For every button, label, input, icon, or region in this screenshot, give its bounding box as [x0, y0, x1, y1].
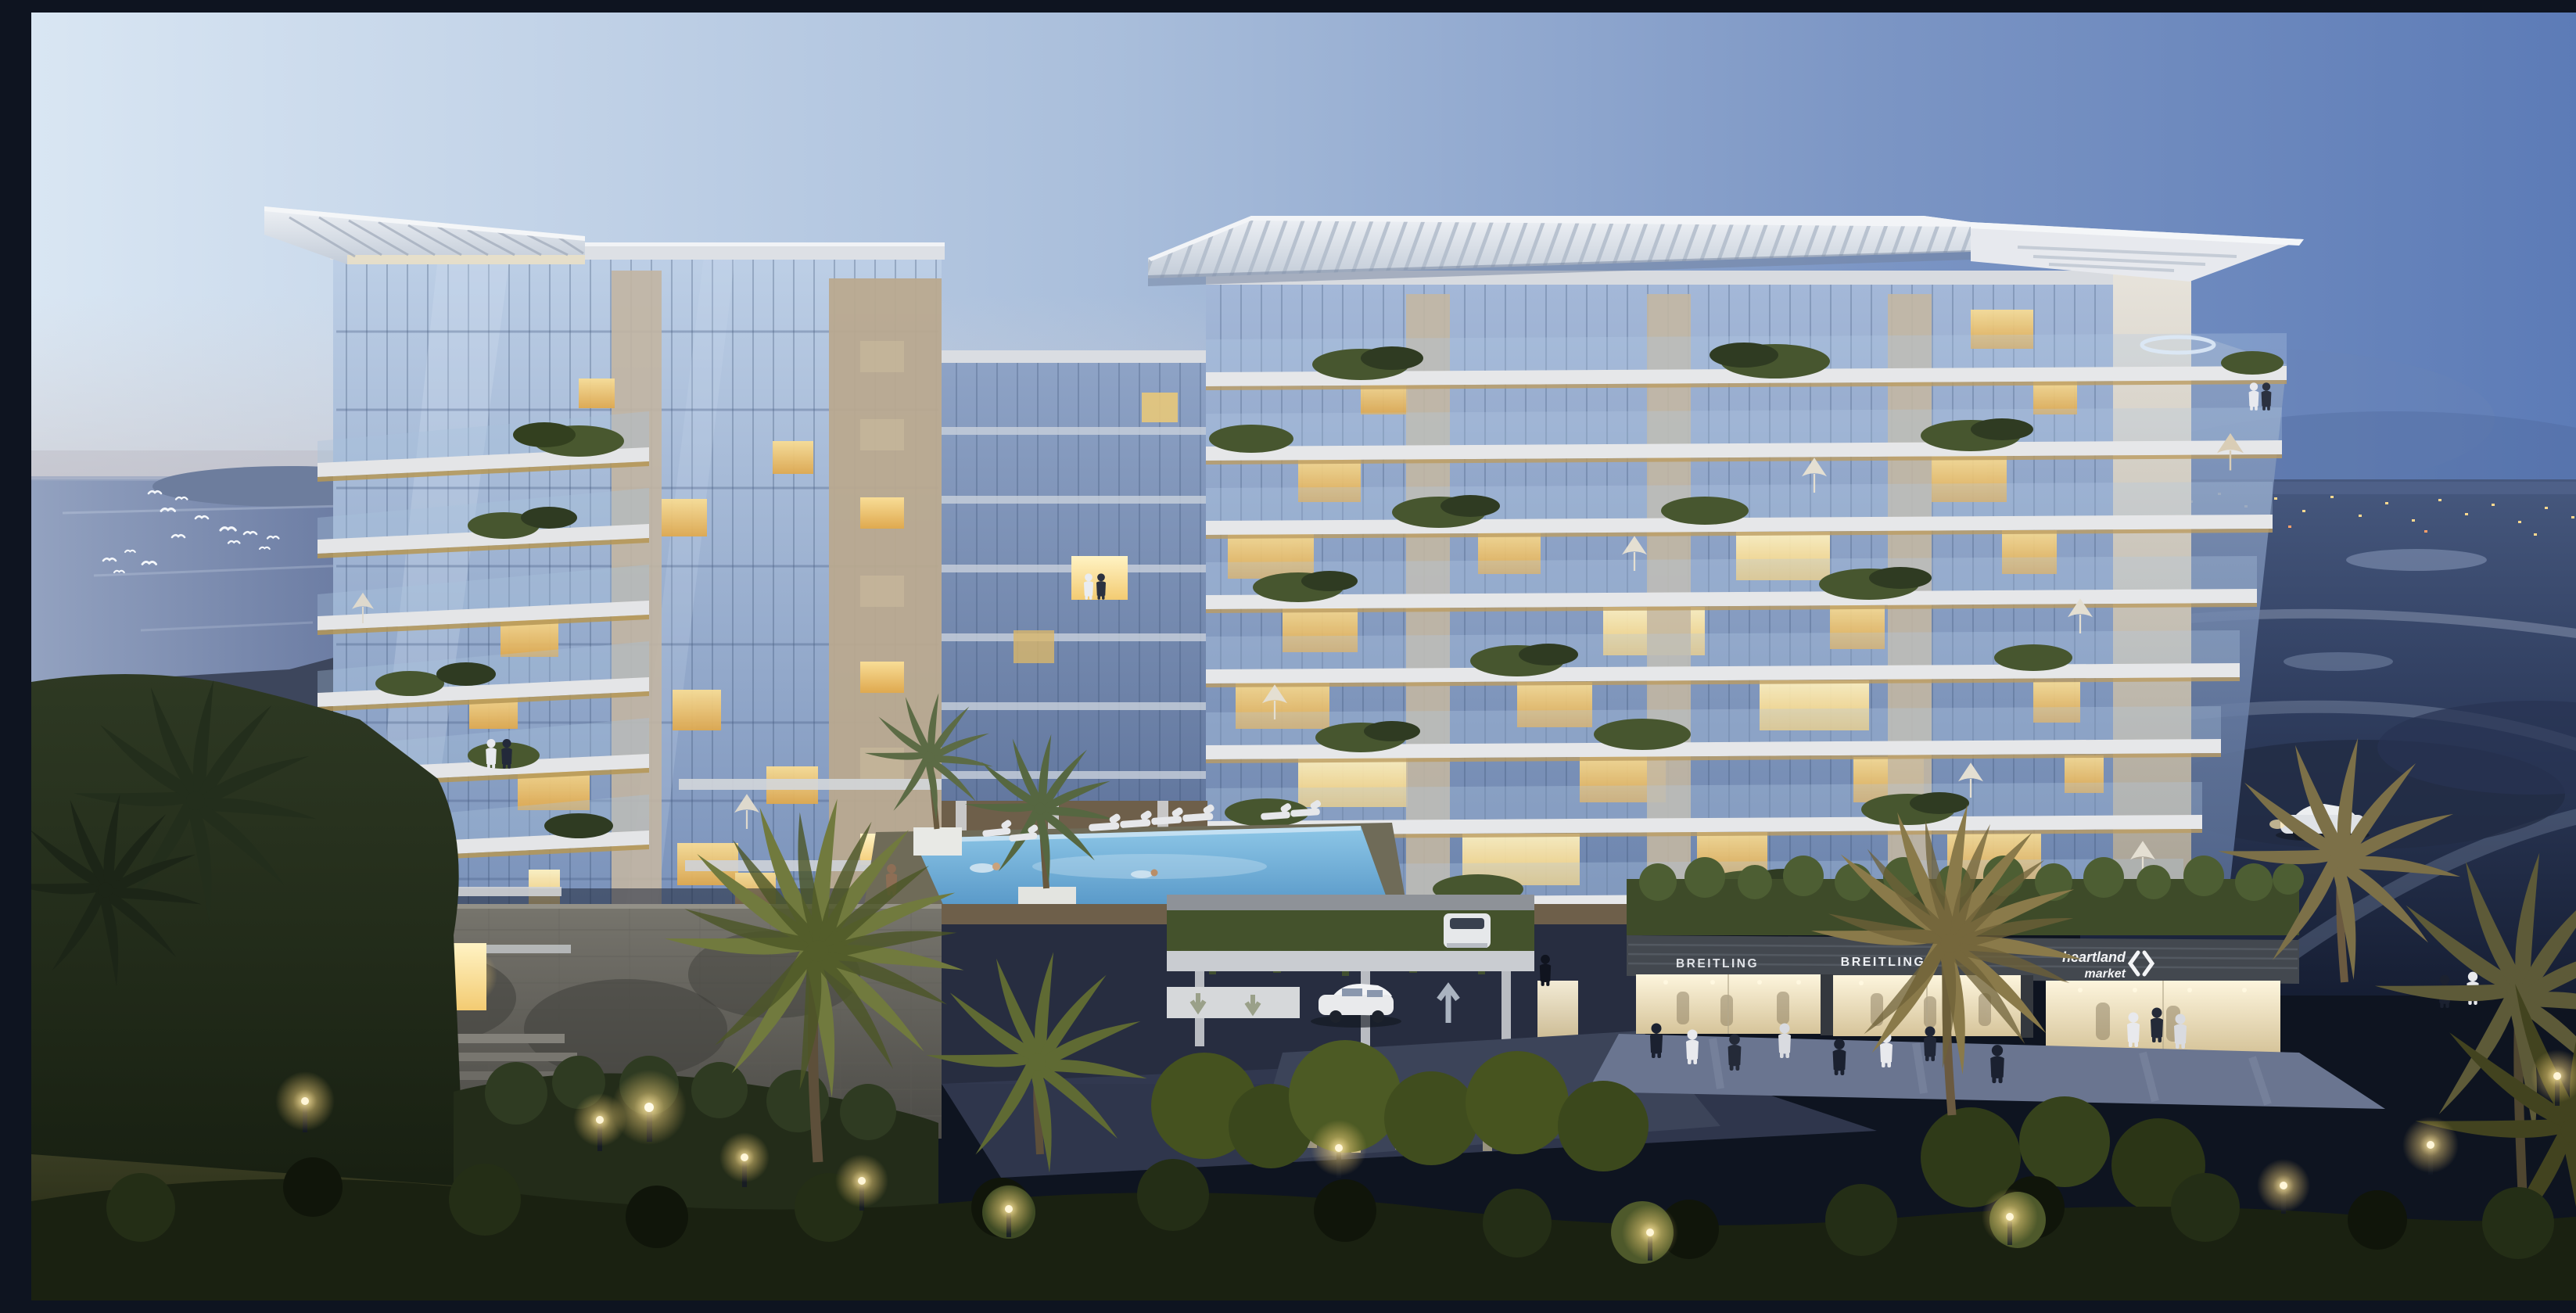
lit-window: [1142, 393, 1178, 422]
valet: [1540, 955, 1551, 986]
lit-window: [1014, 630, 1054, 663]
garden-lamp: [1622, 1204, 1678, 1261]
scene-canvas: BREITLING BREITLING heartland market: [31, 13, 2576, 1300]
lit-lobby: [1537, 981, 1578, 1039]
resident: [1096, 573, 1106, 599]
resident: [1084, 573, 1093, 599]
sign-market-line2: market: [2085, 967, 2126, 981]
suv-driveway: [1444, 913, 1491, 948]
palm-planter-box: [913, 827, 962, 856]
annex-slab: [679, 779, 942, 790]
canopy-fascia: [1167, 951, 1534, 971]
resident: [501, 739, 512, 769]
right-building: [1148, 216, 2304, 916]
architectural-rendering: BREITLING BREITLING heartland market: [31, 13, 2576, 1300]
resident: [2249, 382, 2259, 411]
ramp-beam: [1167, 987, 1300, 1018]
sign-breitling-left: BREITLING: [1676, 957, 1759, 970]
garden-lamp: [2257, 1159, 2310, 1214]
lit-entry: [452, 943, 486, 1010]
garden-lamp: [1311, 1120, 1367, 1178]
garden-lamp: [1982, 1189, 2038, 1245]
canopy-lit-soffit: [347, 255, 585, 264]
resident: [2262, 382, 2272, 411]
store-pier: [1821, 974, 1833, 1035]
creek-glint: [2284, 652, 2393, 671]
creek-glint: [2346, 549, 2487, 571]
sign-breitling-right: BREITLING: [1841, 956, 1926, 969]
garden-lamp: [2402, 1117, 2459, 1175]
garden-lamp: [612, 1070, 687, 1145]
canopy-support: [1501, 971, 1511, 1046]
canopy-gravel-roof: [1167, 895, 1534, 912]
resident: [486, 739, 497, 769]
tree-shadow: [524, 979, 727, 1079]
center-parapet: [940, 350, 1206, 363]
